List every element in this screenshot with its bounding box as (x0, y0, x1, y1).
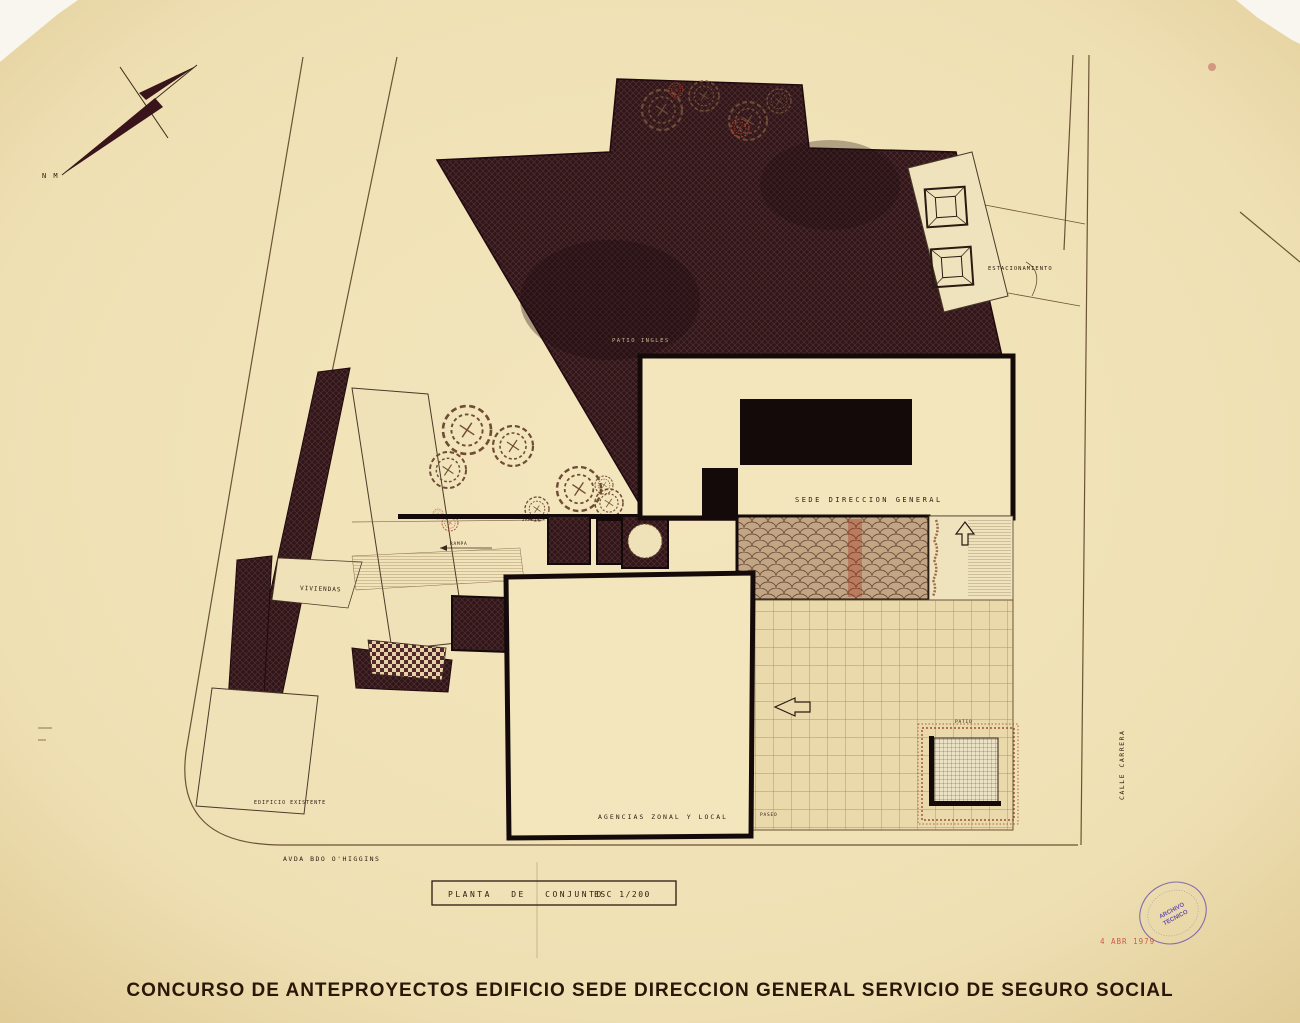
sede-label: SEDE DIRECCION GENERAL (795, 496, 943, 504)
drawing-sheet: N M PATIO INGLES ESTACIONAMIENTO (0, 0, 1300, 1023)
red-smudge (848, 519, 862, 597)
sede-inner-court (740, 399, 912, 465)
drawing-name: PLANTA DE CONJUNTO (448, 890, 604, 899)
drawing-scale: ESC 1/200 (594, 890, 651, 899)
site-plan-svg: N M PATIO INGLES ESTACIONAMIENTO (0, 0, 1300, 1023)
date-stamp: 4 ABR 1979 (1100, 937, 1155, 946)
patio-ingles-label: PATIO INGLES (612, 338, 670, 344)
edificio-existente-building: EDIFICIO EXISTENTE (196, 688, 326, 814)
jardin-label: JARDIN (522, 517, 540, 522)
compass-label: N M (42, 172, 59, 180)
wall-stub (702, 468, 738, 518)
calle-label: CALLE CARRERA (1118, 730, 1126, 800)
viviendas-label: VIVIENDAS (300, 585, 342, 593)
planted-strip (929, 516, 1013, 600)
avenida-label: AVDA BDO O'HIGGINS (283, 855, 380, 863)
rampa-label: RAMPA (450, 541, 468, 547)
viviendas-label-block (272, 558, 362, 608)
main-title: CONCURSO DE ANTEPROYECTOS EDIFICIO SEDE … (126, 980, 1173, 1001)
agencias-building: AGENCIAS ZONAL Y LOCAL (506, 573, 753, 838)
patio-label: PATIO (955, 719, 973, 725)
edificio-existente-label: EDIFICIO EXISTENTE (254, 800, 326, 806)
agencias-label: AGENCIAS ZONAL Y LOCAL (598, 813, 728, 821)
sede-building: SEDE DIRECCION GENERAL (640, 356, 1013, 518)
estacionamiento-label: ESTACIONAMIENTO (988, 266, 1053, 272)
scan-spot (1208, 63, 1216, 71)
paseo-label: PASEO (760, 812, 778, 818)
